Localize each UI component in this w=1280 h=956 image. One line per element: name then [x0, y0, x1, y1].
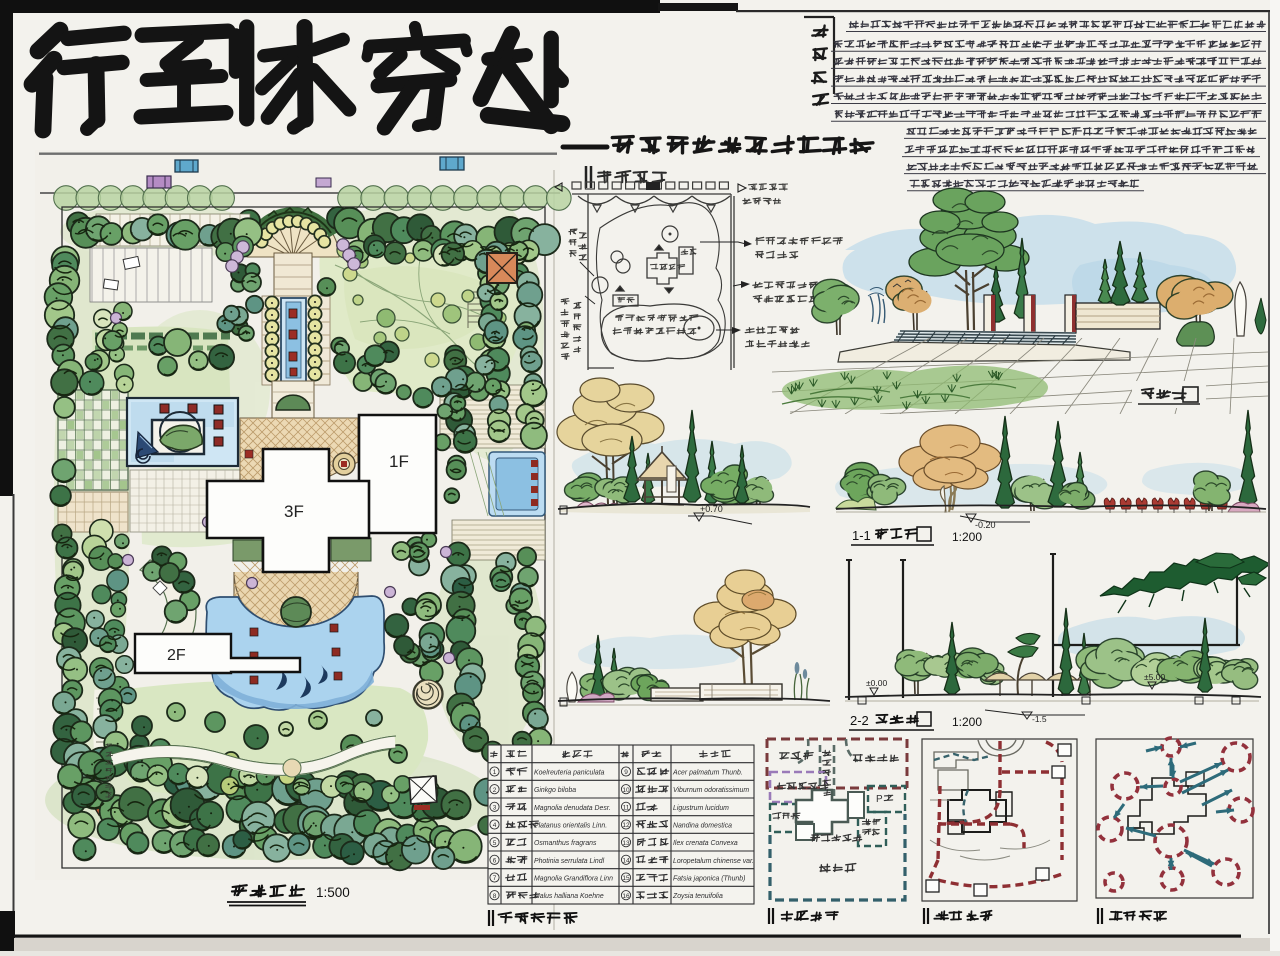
svg-text:16: 16 [622, 893, 630, 900]
svg-text:1-1: 1-1 [852, 528, 871, 543]
svg-text:Magnolia denudata Desr.: Magnolia denudata Desr. [534, 805, 611, 812]
svg-text:1: 1 [493, 769, 497, 776]
svg-text:±0.00: ±0.00 [866, 678, 887, 688]
svg-text:Nandina domestica: Nandina domestica [673, 823, 732, 830]
svg-text:Ginkgo biloba: Ginkgo biloba [534, 787, 576, 794]
svg-text:Koelreuteria paniculata: Koelreuteria paniculata [534, 770, 605, 777]
svg-text:1:200: 1:200 [952, 530, 982, 544]
svg-text:3: 3 [493, 804, 497, 811]
svg-text:-1.5: -1.5 [1032, 714, 1047, 724]
svg-text:1F: 1F [389, 452, 409, 471]
svg-text:5: 5 [493, 840, 497, 847]
svg-text:2-2: 2-2 [850, 713, 869, 728]
svg-text:Magnolia Grandiflora Linn: Magnolia Grandiflora Linn [534, 876, 613, 883]
svg-text:Platanus orientalis Linn.: Platanus orientalis Linn. [534, 823, 607, 830]
svg-text:Ilex crenata Convexa: Ilex crenata Convexa [673, 840, 738, 847]
svg-text:2F: 2F [167, 647, 186, 664]
svg-text:Osmanthus fragrans: Osmanthus fragrans [534, 840, 597, 847]
svg-text:14: 14 [622, 857, 630, 864]
svg-text:10: 10 [622, 787, 630, 794]
svg-text:4: 4 [493, 822, 497, 829]
svg-text:P: P [876, 794, 883, 805]
svg-text:6: 6 [493, 857, 497, 864]
svg-text:±5.00: ±5.00 [1144, 672, 1165, 682]
svg-text:13: 13 [622, 840, 630, 847]
svg-text:12: 12 [622, 822, 630, 829]
svg-text:Malus halliana Koehne: Malus halliana Koehne [534, 893, 604, 900]
svg-text:3F: 3F [284, 502, 304, 521]
svg-text:9: 9 [624, 769, 628, 776]
svg-text:Acer palmatum Thunb.: Acer palmatum Thunb. [672, 770, 743, 777]
svg-text:+0.70: +0.70 [700, 504, 723, 514]
svg-text:7: 7 [493, 875, 497, 882]
svg-text:Ligustrum lucidum: Ligustrum lucidum [673, 805, 729, 812]
svg-text:Viburnum odoratissimum: Viburnum odoratissimum [673, 787, 749, 794]
svg-text:1:200: 1:200 [952, 715, 982, 729]
svg-text:15: 15 [622, 875, 630, 882]
svg-text:Photinia serrulata Lindl: Photinia serrulata Lindl [534, 858, 605, 865]
svg-text:8: 8 [493, 893, 497, 900]
svg-text:Fatsia japonica (Thunb): Fatsia japonica (Thunb) [673, 876, 745, 883]
svg-text:-0.20: -0.20 [975, 520, 996, 530]
svg-text:2: 2 [493, 787, 497, 794]
svg-text:1:500: 1:500 [316, 885, 350, 900]
svg-text:Zoysia tenuifolia: Zoysia tenuifolia [672, 893, 723, 900]
svg-text:Loropetalum chinense var.: Loropetalum chinense var. [673, 858, 754, 865]
svg-text:11: 11 [623, 804, 630, 811]
